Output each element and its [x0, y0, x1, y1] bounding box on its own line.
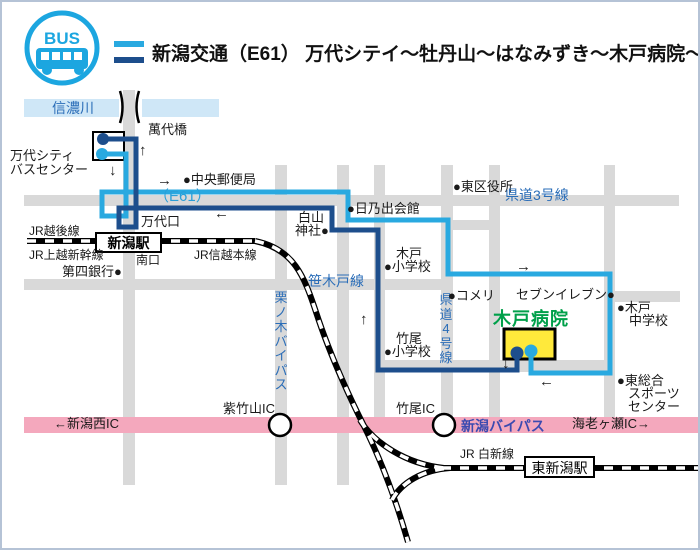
outbound-right-arrow-2: →: [516, 259, 531, 274]
kido-junior-high-label-2: 中学校: [629, 314, 668, 328]
legend-outbound-line: [114, 41, 144, 47]
niigata-bypass-label: 新潟バイパス: [461, 416, 545, 436]
sasakido-line-label: 笹木戸線: [308, 274, 364, 288]
niigata-west-ic-label: ←新潟西IC: [54, 417, 119, 431]
return-up-arrow: ↑: [360, 312, 368, 327]
hakusan-shrine-label-2: 神社●: [295, 224, 329, 238]
bus-center-return-stop-dot: [97, 133, 109, 145]
kido-hospital-label: 木戸病院: [493, 305, 569, 331]
seven-eleven-label: セブンイレブン●: [516, 288, 615, 302]
kendo4-label: 県道4号線: [438, 293, 454, 366]
hinode-hall-label: ●日乃出会館: [347, 202, 420, 216]
higashi-niigata-station-label: 東新潟駅: [525, 460, 594, 476]
shichikuyama-ic-circle: [269, 414, 291, 436]
sports-center-label-3: センター: [628, 400, 680, 414]
jr-shinetsu-line-label: JR信越本線: [194, 248, 257, 262]
bus-logo-text: BUS: [44, 29, 80, 48]
minamiguchi-label: 南口: [136, 253, 160, 267]
bus-center-label-1: 万代シティ: [10, 149, 74, 163]
legend-return-line: [114, 57, 144, 63]
takeo-ic-circle: [433, 414, 455, 436]
bus-logo-icon: BUS: [22, 8, 102, 88]
page-title: 新潟交通（E61） 万代シテイ～牡丹山～はなみずき～木戸病院～竹尾線: [152, 39, 700, 66]
jr-hakushin-line-label: JR 白新線: [460, 447, 514, 461]
takeo-ic-label: 竹尾IC: [396, 402, 435, 416]
depart-down-arrow-2: ↓: [502, 356, 510, 371]
shinano-river-label: 信濃川: [52, 101, 94, 115]
kendo3-label: 県道3号線: [505, 188, 569, 202]
return-left-arrow: ←: [214, 206, 229, 221]
komeri-label: ●コメリ: [448, 289, 495, 303]
jr-joetsu-shinkansen-label: JR上越新幹線: [29, 248, 104, 262]
takeo-elementary-label-2: ●小学校: [384, 345, 431, 359]
river-band-right: [142, 99, 219, 117]
daishi-bank-label: 第四銀行●: [62, 265, 122, 279]
shichikuyama-ic-label: 紫竹山IC: [223, 402, 275, 416]
niigata-station-label: 新潟駅: [96, 235, 161, 251]
outbound-right-arrow: →: [157, 173, 172, 188]
bus-center-label-2: バスセンター: [10, 163, 88, 177]
route-map: BUS 新潟交通（E61） 万代シテイ～牡丹山～はなみずき～木戸病院～竹尾線 信…: [0, 0, 700, 550]
kido-elementary-label-2: ●小学校: [384, 260, 431, 274]
chuo-post-office-label: ●中央郵便局: [183, 173, 256, 187]
route-number-label: （E61）: [154, 190, 211, 204]
jr-echigo-line-label: JR越後線: [29, 224, 80, 238]
kurinoki-bypass-label: 栗ノ木バイパス: [273, 291, 289, 393]
arrive-left-arrow: ←: [539, 374, 554, 389]
bus-center-outbound-stop-dot: [96, 148, 108, 160]
depart-down-arrow: ↓: [109, 163, 117, 178]
bandai-bridge-label: 萬代橋: [148, 123, 187, 137]
arrive-up-arrow: ↑: [139, 143, 147, 158]
higashi-ward-office-label: ●東区役所: [453, 180, 513, 194]
ebigase-ic-label: 海老ヶ瀬IC→: [572, 417, 650, 431]
bandaiguchi-label: 万代口: [141, 215, 180, 229]
hospital-return-stop-dot: [511, 347, 524, 360]
hospital-outbound-stop-dot: [525, 345, 538, 358]
